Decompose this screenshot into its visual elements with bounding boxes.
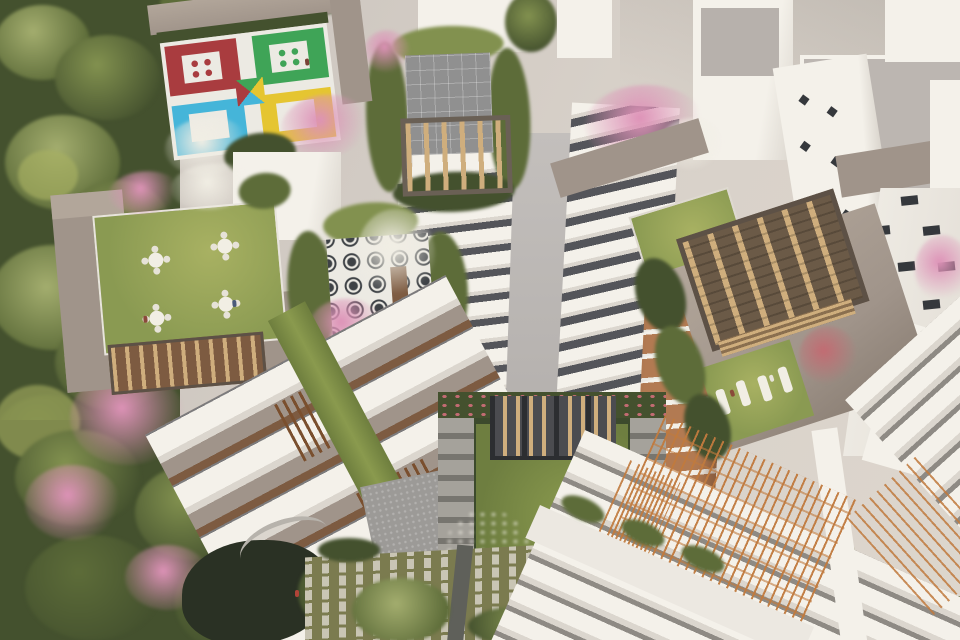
- flower-bush-pink: [363, 29, 410, 73]
- white-building-block: [930, 80, 960, 200]
- person: [305, 58, 310, 65]
- aerial-render-scene: [0, 0, 960, 640]
- palm-canopy: [352, 578, 450, 640]
- person: [769, 374, 775, 382]
- person: [729, 389, 735, 397]
- window-panel: [923, 225, 941, 236]
- ludo-quadrant-green: [252, 27, 330, 85]
- taupe-roof-band: [64, 351, 111, 393]
- white-building-block: [557, 0, 612, 58]
- roof-garden-terrace: [359, 9, 538, 215]
- hedge-strip: [318, 538, 380, 562]
- pergola: [400, 115, 513, 197]
- ludo-home-green: [269, 40, 310, 72]
- white-building-block: [885, 0, 960, 62]
- person: [232, 300, 237, 307]
- person: [295, 590, 299, 597]
- ludo-center: [235, 77, 266, 106]
- person: [143, 316, 148, 323]
- tree-canopy: [55, 35, 160, 120]
- ludo-quadrant-red: [164, 38, 242, 96]
- window-diamond: [827, 106, 838, 117]
- ludo-home-red: [181, 51, 222, 83]
- window-diamond: [800, 141, 811, 152]
- bougainvillea-pink: [25, 465, 120, 540]
- yoga-mat: [735, 379, 752, 407]
- flat-roof-gray: [701, 8, 779, 76]
- window-diamond: [798, 94, 809, 105]
- yoga-mat: [777, 366, 794, 394]
- window-panel: [901, 195, 919, 206]
